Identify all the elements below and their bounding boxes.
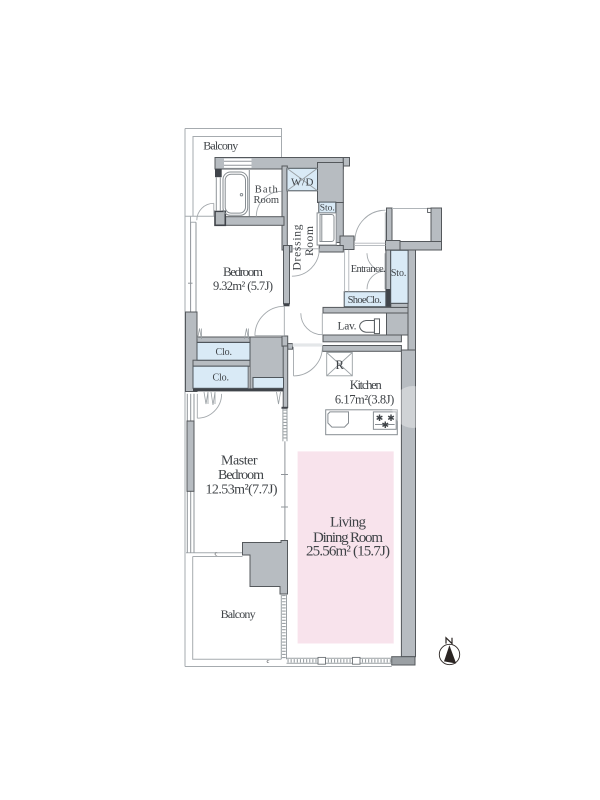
svg-text:Sto.: Sto.	[320, 204, 335, 214]
svg-text:Bedroom: Bedroom	[218, 468, 264, 483]
svg-text:R: R	[336, 358, 345, 372]
svg-text:Bedroom: Bedroom	[223, 264, 263, 279]
svg-text:c: c	[215, 551, 218, 558]
svg-text:Entrance.: Entrance.	[351, 264, 386, 275]
svg-text:6.17m²(3.8J): 6.17m²(3.8J)	[335, 392, 395, 406]
svg-text:ShoeClo.: ShoeClo.	[348, 295, 382, 306]
svg-text:Living: Living	[330, 515, 367, 531]
svg-text:Balcony: Balcony	[221, 607, 256, 621]
svg-text:Balcony: Balcony	[203, 138, 238, 152]
svg-text:Room: Room	[254, 195, 280, 206]
svg-text:✱: ✱	[382, 420, 390, 430]
svg-text:Dressing: Dressing	[292, 224, 304, 270]
svg-text:Lav.: Lav.	[338, 320, 357, 332]
svg-text:Kitchen: Kitchen	[350, 378, 383, 392]
svg-text:c: c	[267, 658, 270, 665]
svg-text:W/D: W/D	[291, 176, 314, 188]
svg-text:25.56m² (15.7J): 25.56m² (15.7J)	[306, 544, 390, 560]
svg-text:Clo.: Clo.	[215, 347, 232, 358]
svg-text:Master: Master	[221, 454, 258, 469]
svg-text:Room: Room	[304, 226, 316, 256]
svg-text:9.32m² (5.7J): 9.32m² (5.7J)	[213, 279, 273, 293]
svg-text:Clo.: Clo.	[212, 373, 229, 384]
svg-text:Sto.: Sto.	[391, 268, 407, 279]
svg-text:12.53m²(7.7J): 12.53m²(7.7J)	[206, 483, 278, 498]
